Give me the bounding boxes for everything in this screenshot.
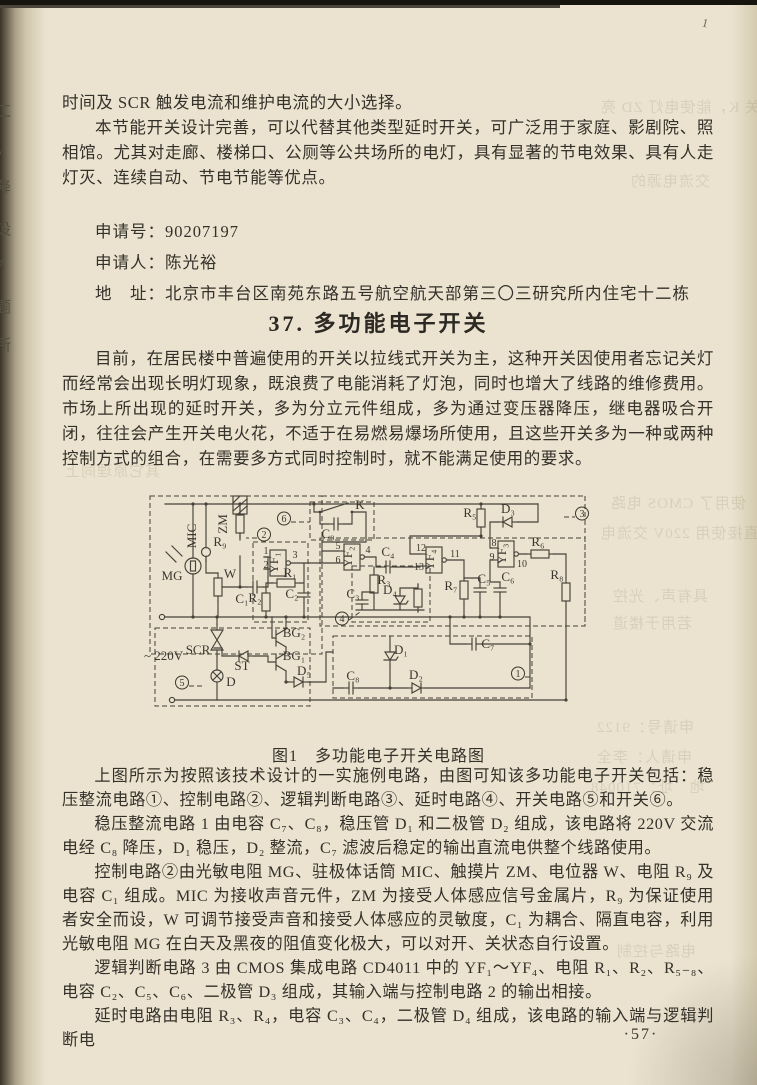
svg-text:C₄: C₄ bbox=[381, 544, 395, 559]
section-intro-paragraph: 目前，在居民楼中普遍使用的开关以拉线式开关为主，这种开关因使用者忘记关灯而经常会… bbox=[62, 346, 714, 471]
svg-text:D₂: D₂ bbox=[409, 667, 423, 682]
svg-text:C₉: C₉ bbox=[321, 526, 334, 541]
svg-text:8: 8 bbox=[492, 538, 497, 549]
address-value: 北京市丰台区南苑东路五号航空航天部第三〇三研究所内住宅十二栋 bbox=[165, 284, 690, 303]
spine-bleed-characters: 工，降设7题所 bbox=[1, 0, 21, 1085]
paragraph-continuation: 时间及 SCR 触发电流和维护电流的大小选择。 bbox=[62, 90, 714, 115]
svg-text:~ 220V: ~ 220V bbox=[144, 648, 184, 663]
svg-text:BG₂: BG₂ bbox=[283, 625, 306, 640]
spine-char: ， bbox=[0, 138, 11, 159]
svg-text:R₉: R₉ bbox=[213, 534, 226, 549]
svg-text:6: 6 bbox=[282, 514, 287, 525]
svg-text:MIC: MIC bbox=[184, 524, 199, 549]
svg-text:10: 10 bbox=[517, 559, 527, 570]
section-heading: 37. 多功能电子开关 bbox=[0, 306, 757, 338]
svg-text:D₄: D₄ bbox=[383, 582, 397, 597]
svg-text:W: W bbox=[224, 566, 237, 581]
svg-text:C₆: C₆ bbox=[501, 569, 514, 584]
svg-text:C₃: C₃ bbox=[346, 586, 359, 601]
application-number-line: 申请号：90207197 bbox=[95, 216, 690, 247]
description-block: 上图所示为按照该技术设计的一实施例电路，由图可知该多功能电子开关包括：稳压整流电… bbox=[62, 764, 714, 1052]
paragraph-overview: 上图所示为按照该技术设计的一实施例电路，由图可知该多功能电子开关包括：稳压整流电… bbox=[62, 764, 714, 812]
svg-text:R₆: R₆ bbox=[531, 534, 544, 549]
svg-text:5: 5 bbox=[180, 678, 185, 689]
svg-text:12: 12 bbox=[416, 543, 426, 554]
svg-text:YF₂: YF₂ bbox=[340, 546, 355, 567]
spine-char: 设 bbox=[0, 218, 11, 239]
svg-text:K: K bbox=[355, 497, 365, 512]
svg-text:BG₁: BG₁ bbox=[283, 648, 306, 663]
svg-text:1: 1 bbox=[264, 546, 269, 557]
applicant-value: 陈光裕 bbox=[165, 253, 218, 272]
svg-text:4: 4 bbox=[340, 614, 345, 625]
svg-text:5: 5 bbox=[336, 541, 341, 552]
svg-text:C₈: C₈ bbox=[346, 668, 359, 683]
paragraph-logic: 逻辑判断电路 3 由 CMOS 集成电路 CD4011 中的 YF₁～YF₄、电… bbox=[62, 956, 714, 1004]
svg-text:R₅: R₅ bbox=[463, 505, 476, 520]
application-number-value: 90207197 bbox=[165, 222, 239, 241]
svg-text:1: 1 bbox=[516, 669, 521, 680]
svg-text:6: 6 bbox=[336, 555, 341, 566]
svg-text:2: 2 bbox=[262, 530, 267, 541]
spine-char: 降 bbox=[0, 176, 11, 197]
svg-text:R₁: R₁ bbox=[283, 565, 296, 580]
svg-text:R₂: R₂ bbox=[248, 590, 261, 605]
svg-text:13: 13 bbox=[414, 562, 424, 573]
address-line: 地 址：北京市丰台区南苑东路五号航空航天部第三〇三研究所内住宅十二栋 bbox=[95, 278, 690, 309]
svg-text:C₇: C₇ bbox=[481, 636, 494, 651]
corner-mark: 1 bbox=[700, 15, 709, 31]
page-number: ·57· bbox=[586, 1026, 696, 1044]
svg-text:4: 4 bbox=[366, 545, 371, 556]
svg-text:MG: MG bbox=[162, 568, 183, 583]
spine-char: 7 bbox=[0, 258, 4, 275]
svg-text:3: 3 bbox=[293, 550, 298, 561]
application-number-label: 申请号： bbox=[95, 222, 165, 241]
intro-block: 时间及 SCR 触发电流和维护电流的大小选择。 本节能开关设计完善，可以代替其他… bbox=[62, 90, 714, 190]
svg-text:2: 2 bbox=[264, 560, 269, 571]
svg-text:11: 11 bbox=[450, 549, 460, 560]
svg-text:SCR: SCR bbox=[186, 642, 211, 657]
address-label: 地 址： bbox=[95, 284, 165, 303]
paragraph-benefits: 本节能开关设计完善，可以代替其他类型延时开关，可广泛用于家庭、影剧院、照相馆。尤… bbox=[62, 115, 714, 190]
svg-text:R₈: R₈ bbox=[550, 567, 563, 582]
applicant-label: 申请人： bbox=[95, 253, 165, 272]
spine-char: 工 bbox=[0, 100, 11, 121]
svg-text:C₁: C₁ bbox=[235, 591, 248, 606]
svg-text:R₇: R₇ bbox=[444, 578, 457, 593]
svg-text:D₁: D₁ bbox=[394, 642, 408, 657]
paragraph-rectifier: 稳压整流电路 1 由电容 C₇、C₈，稳压管 D₁ 和二极管 D₂ 组成，该电路… bbox=[62, 812, 714, 860]
svg-text:9: 9 bbox=[490, 552, 495, 563]
scan-top-edge-shadow bbox=[0, 5, 560, 8]
svg-text:ZM: ZM bbox=[215, 514, 230, 534]
svg-text:ST: ST bbox=[234, 658, 249, 673]
svg-text:C₅: C₅ bbox=[477, 571, 490, 586]
circuit-diagram: ~ 220VMICZMR₉MGWC₁2YF₁123R₁R₂C₂6KC₉YF₂56… bbox=[70, 492, 710, 742]
svg-text:C₂: C₂ bbox=[285, 586, 298, 601]
paragraph-current-market: 目前，在居民楼中普遍使用的开关以拉线式开关为主，这种开关因使用者忘记关灯而经常会… bbox=[62, 346, 714, 471]
svg-text:3: 3 bbox=[580, 509, 585, 520]
paragraph-control: 控制电路②由光敏电阻 MG、驻极体话筒 MIC、触摸片 ZM、电位器 W、电阻 … bbox=[62, 860, 714, 956]
applicant-line: 申请人：陈光裕 bbox=[95, 247, 690, 278]
svg-text:D₅: D₅ bbox=[297, 663, 311, 678]
svg-text:D₃: D₃ bbox=[501, 501, 515, 516]
svg-text:D: D bbox=[226, 674, 235, 689]
figure-caption: 图1 多功能电子开关电路图 bbox=[0, 742, 757, 766]
application-info: 申请号：90207197 申请人：陈光裕 地 址：北京市丰台区南苑东路五号航空航… bbox=[95, 216, 690, 309]
